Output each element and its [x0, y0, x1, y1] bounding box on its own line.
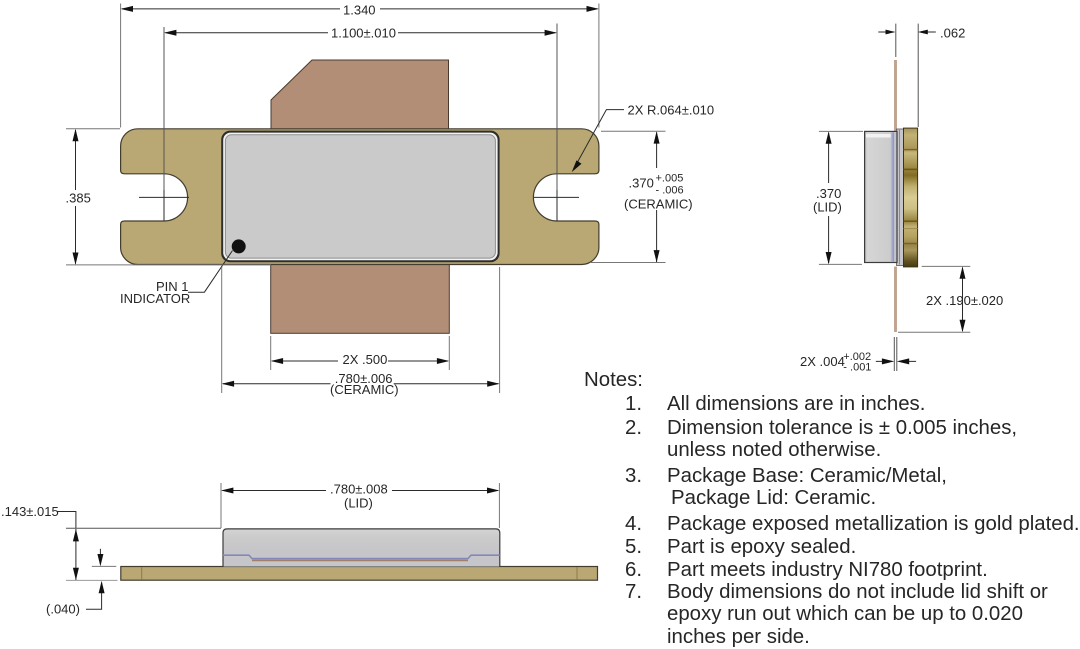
svg-text:1.100±.010: 1.100±.010	[331, 26, 396, 41]
svg-text:- .006: - .006	[656, 185, 684, 197]
svg-text:2X .500: 2X .500	[343, 352, 388, 367]
svg-text:Package exposed metallization: Package exposed metallization is gold pl…	[667, 513, 1080, 535]
svg-text:Body dimensions do not include: Body dimensions do not include lid shift…	[667, 581, 1048, 603]
svg-text:.385: .385	[66, 190, 91, 205]
svg-text:Notes:: Notes:	[584, 369, 643, 391]
svg-text:(LID): (LID)	[813, 200, 842, 215]
svg-text:All dimensions are in inches.: All dimensions are in inches.	[667, 393, 925, 415]
svg-text:INDICATOR: INDICATOR	[120, 291, 190, 306]
svg-text:+.005: +.005	[656, 173, 684, 185]
svg-text:(LID): (LID)	[344, 496, 373, 511]
svg-text:3.: 3.	[625, 465, 642, 487]
svg-text:.780±.008: .780±.008	[330, 482, 388, 497]
svg-text:2X .190±.020: 2X .190±.020	[926, 293, 1003, 308]
svg-text:- .001: - .001	[843, 362, 871, 374]
svg-text:.370: .370	[629, 176, 654, 191]
svg-text:2X R.064±.010: 2X R.064±.010	[628, 103, 715, 118]
svg-text:Dimension tolerance is ± 0.005: Dimension tolerance is ± 0.005 inches,	[667, 417, 1017, 439]
svg-text:6.: 6.	[625, 559, 642, 581]
svg-text:(.040): (.040)	[46, 602, 80, 617]
svg-text:4.: 4.	[625, 513, 642, 535]
svg-text:(CERAMIC): (CERAMIC)	[624, 197, 693, 212]
svg-text:Package Base: Ceramic/Metal,: Package Base: Ceramic/Metal,	[667, 465, 947, 487]
svg-text:Part is epoxy sealed.: Part is epoxy sealed.	[667, 536, 856, 558]
svg-text:Part meets industry NI780 foot: Part meets industry NI780 footprint.	[667, 559, 988, 581]
svg-text:5.: 5.	[625, 536, 642, 558]
svg-text:1.340: 1.340	[343, 2, 376, 17]
svg-text:2X .004: 2X .004	[800, 354, 845, 369]
svg-text:epoxy run out which can be up: epoxy run out which can be up to 0.020	[667, 603, 1023, 625]
svg-text:Package Lid: Ceramic.: Package Lid: Ceramic.	[671, 487, 876, 509]
svg-text:(CERAMIC): (CERAMIC)	[330, 382, 399, 397]
svg-text:7.: 7.	[625, 581, 642, 603]
svg-text:unless noted otherwise.: unless noted otherwise.	[667, 439, 881, 461]
svg-text:1.: 1.	[625, 393, 642, 415]
svg-text:2.: 2.	[625, 417, 642, 439]
svg-text:.143±.015: .143±.015	[1, 504, 59, 519]
svg-text:inches per side.: inches per side.	[667, 626, 810, 648]
svg-text:.062: .062	[940, 25, 965, 40]
